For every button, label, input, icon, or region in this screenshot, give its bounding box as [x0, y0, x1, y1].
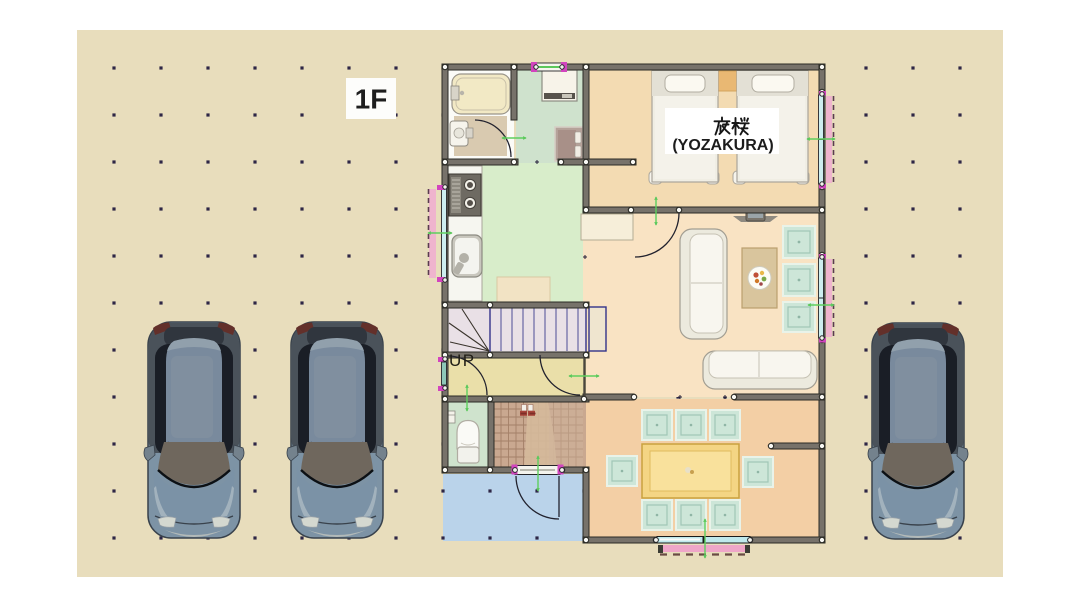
svg-text:1F: 1F	[355, 84, 388, 115]
svg-text:(YOZAKURA): (YOZAKURA)	[672, 137, 773, 154]
svg-text:UP: UP	[449, 351, 476, 370]
